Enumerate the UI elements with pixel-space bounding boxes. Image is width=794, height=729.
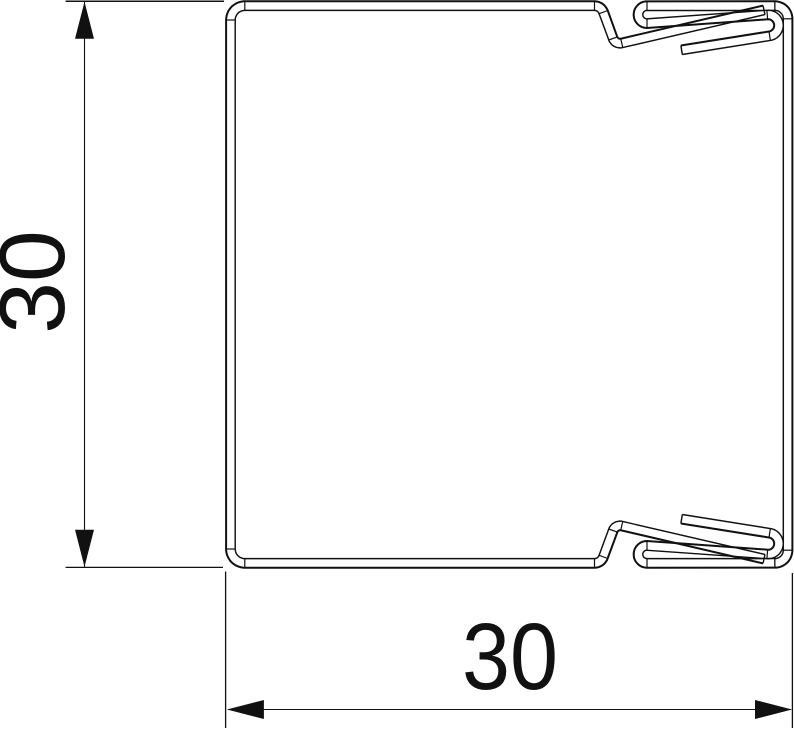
svg-text:30: 30 — [462, 604, 558, 710]
svg-text:30: 30 — [0, 230, 84, 333]
